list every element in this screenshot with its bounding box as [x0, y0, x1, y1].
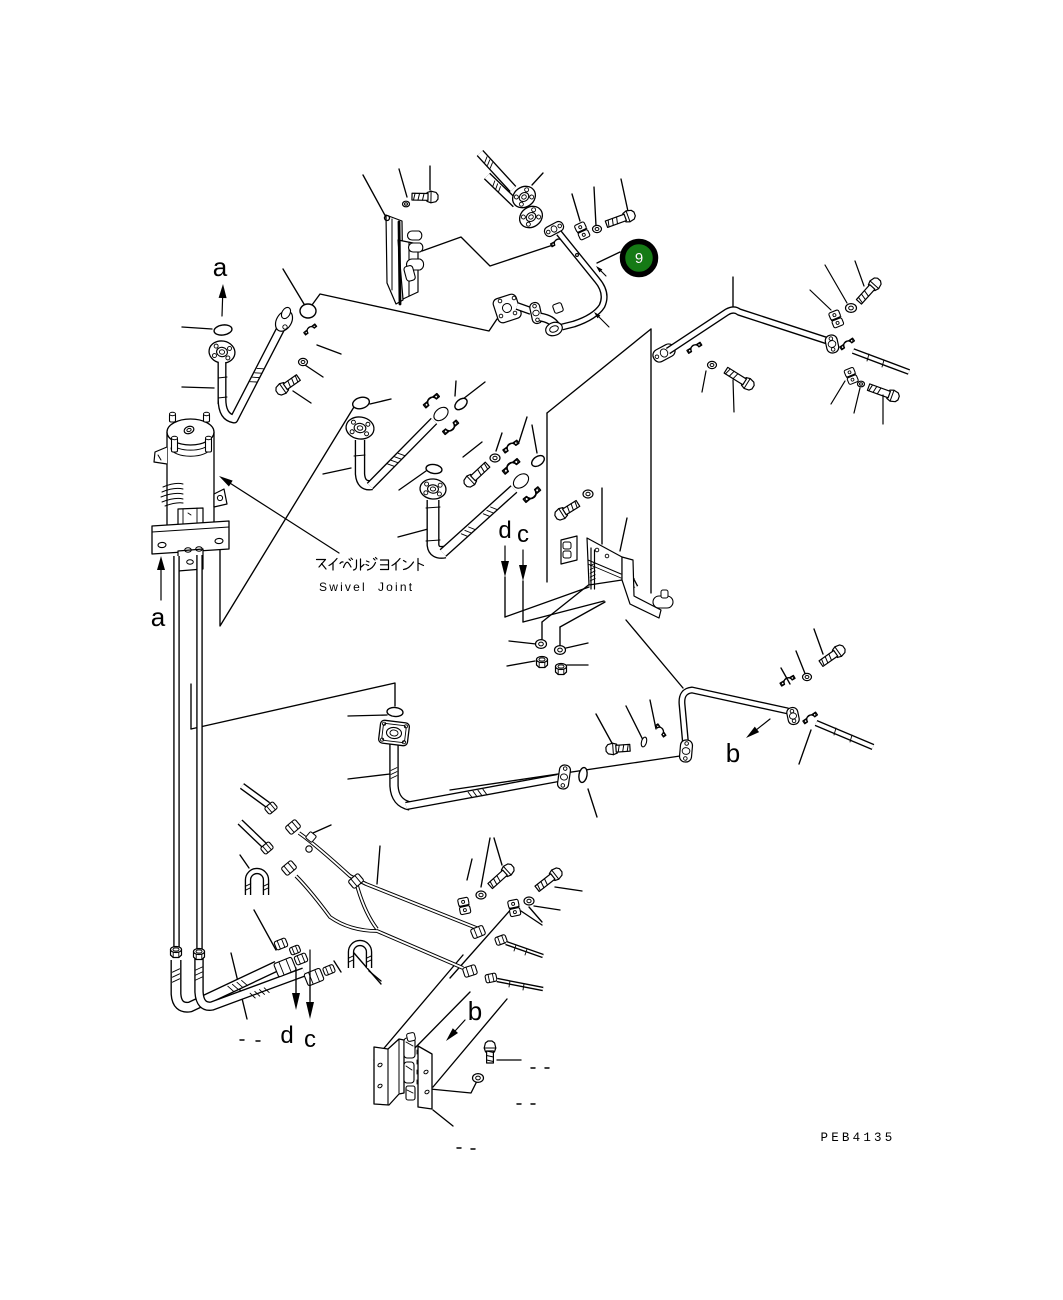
svg-text:d: d [280, 1022, 293, 1049]
svg-text:PEB4135: PEB4135 [821, 1131, 896, 1145]
svg-text:b: b [468, 996, 482, 1026]
svg-text:Swivel Joint: Swivel Joint [319, 580, 414, 594]
svg-text:a: a [151, 602, 166, 632]
svg-text:a: a [213, 252, 228, 282]
svg-text:d: d [498, 517, 511, 544]
svg-text:c: c [304, 1026, 316, 1053]
svg-text:9: 9 [635, 250, 643, 267]
svg-text:b: b [726, 738, 740, 768]
svg-text:c: c [517, 521, 529, 548]
